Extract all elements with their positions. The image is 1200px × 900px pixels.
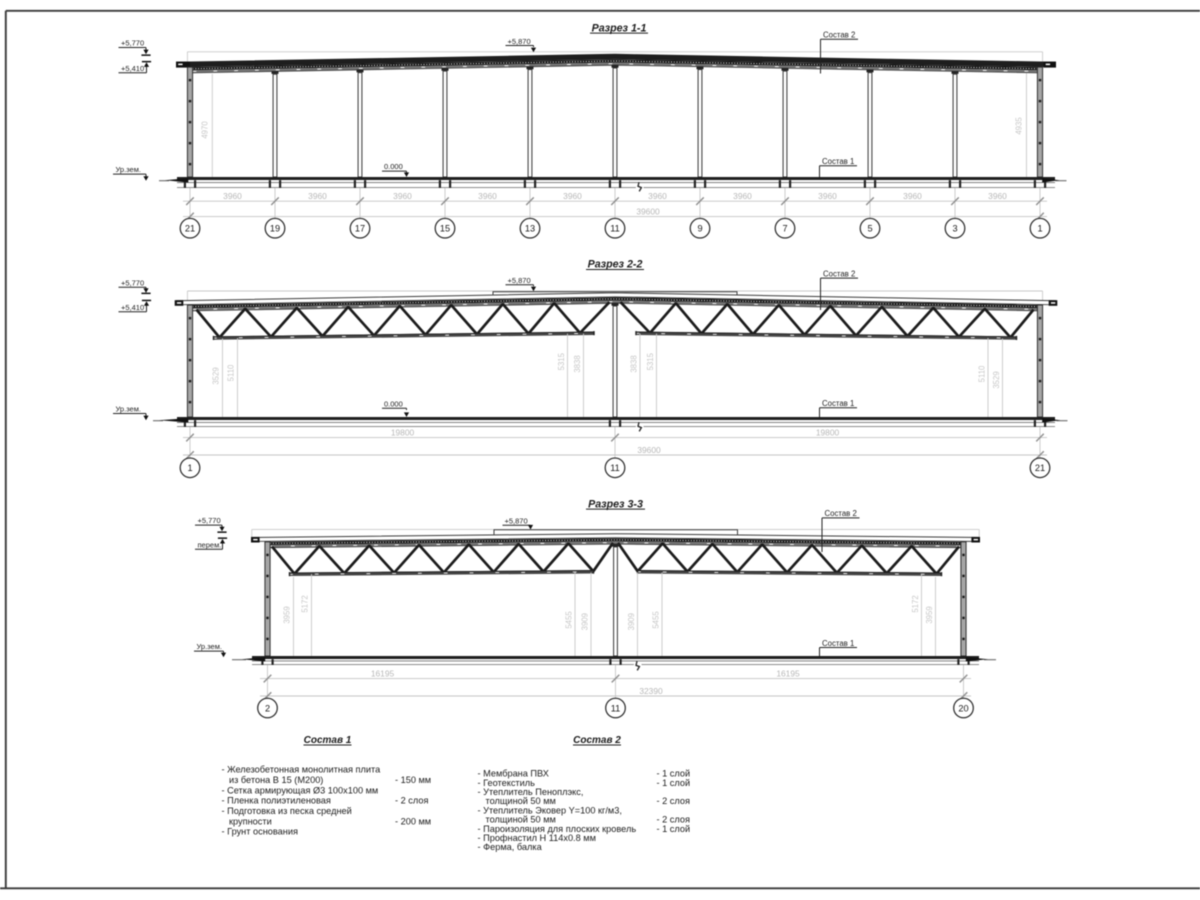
svg-text:- Подготовка из песка средней: - Подготовка из песка средней <box>222 806 352 816</box>
svg-text:11: 11 <box>610 463 620 473</box>
svg-text:5315: 5315 <box>557 352 566 370</box>
svg-text:0.000: 0.000 <box>384 399 403 408</box>
svg-text:3529: 3529 <box>212 367 221 384</box>
svg-text:3960: 3960 <box>223 191 242 201</box>
svg-text:5172: 5172 <box>911 595 920 612</box>
svg-text:+5,770: +5,770 <box>198 516 221 525</box>
svg-text:3: 3 <box>952 224 957 234</box>
svg-text:32390: 32390 <box>639 686 663 696</box>
svg-text:Состав 1: Состав 1 <box>822 399 854 408</box>
svg-text:Состав 1: Состав 1 <box>822 157 854 166</box>
svg-text:3960: 3960 <box>818 191 837 201</box>
svg-text:- Сетка армирующая Ø3 100х100: - Сетка армирующая Ø3 100х100 мм <box>222 785 379 795</box>
svg-text:Ур.зем.: Ур.зем. <box>197 642 222 651</box>
svg-text:3838: 3838 <box>573 355 582 372</box>
svg-text:- 2 слоя: - 2 слоя <box>657 796 690 806</box>
svg-text:1: 1 <box>187 463 192 473</box>
svg-text:3838: 3838 <box>630 355 639 372</box>
svg-text:3960: 3960 <box>903 191 922 201</box>
svg-text:крупности: крупности <box>229 816 272 826</box>
svg-text:16195: 16195 <box>776 668 800 678</box>
svg-text:19800: 19800 <box>816 427 840 437</box>
svg-text:из бетона В 15 (М200): из бетона В 15 (М200) <box>229 775 323 785</box>
svg-text:Ур.зем.: Ур.зем. <box>116 405 141 414</box>
svg-text:Ур.зем.: Ур.зем. <box>116 165 141 174</box>
svg-text:- Ферма, балка: - Ферма, балка <box>478 842 543 852</box>
svg-text:- 150 мм: - 150 мм <box>395 775 431 785</box>
svg-text:- Железобетонная монолитная п: - Железобетонная монолитная плита <box>222 765 382 775</box>
svg-text:5455: 5455 <box>565 611 574 629</box>
svg-text:3960: 3960 <box>308 191 327 201</box>
svg-text:2: 2 <box>265 703 270 713</box>
svg-text:7: 7 <box>782 224 787 234</box>
svg-text:3909: 3909 <box>627 613 636 630</box>
svg-text:21: 21 <box>185 224 195 234</box>
svg-text:3960: 3960 <box>393 191 412 201</box>
svg-text:- 1 слой: - 1 слой <box>657 824 691 834</box>
svg-text:5: 5 <box>867 224 872 234</box>
svg-text:21: 21 <box>1035 463 1045 473</box>
svg-text:Состав 2: Состав 2 <box>823 31 855 40</box>
svg-text:9: 9 <box>697 224 702 234</box>
svg-text:- 200 мм: - 200 мм <box>395 816 431 826</box>
svg-text:19800: 19800 <box>391 427 415 437</box>
svg-text:- 1 слой: - 1 слой <box>657 778 691 788</box>
svg-text:5110: 5110 <box>227 364 236 381</box>
svg-text:3960: 3960 <box>563 191 582 201</box>
svg-text:11: 11 <box>610 224 620 234</box>
svg-text:5315: 5315 <box>646 352 655 370</box>
svg-text:- Грунт основания: - Грунт основания <box>222 827 298 837</box>
svg-text:Разрез 2-2: Разрез 2-2 <box>588 259 643 271</box>
svg-text:Разрез 1-1: Разрез 1-1 <box>592 22 647 34</box>
svg-text:16195: 16195 <box>371 668 395 678</box>
svg-text:+5,770: +5,770 <box>121 39 144 48</box>
svg-text:3909: 3909 <box>581 613 590 630</box>
svg-text:39600: 39600 <box>636 206 660 216</box>
svg-text:+5,870: +5,870 <box>505 517 528 526</box>
svg-text:20: 20 <box>958 703 968 713</box>
svg-text:13: 13 <box>525 224 535 234</box>
svg-text:5172: 5172 <box>301 595 310 612</box>
svg-text:+5,770: +5,770 <box>121 278 144 287</box>
svg-text:Состав 2: Состав 2 <box>825 509 857 518</box>
svg-text:39600: 39600 <box>637 445 661 455</box>
svg-text:5110: 5110 <box>978 365 987 382</box>
svg-text:3960: 3960 <box>478 191 497 201</box>
svg-text:3529: 3529 <box>992 371 1001 388</box>
svg-text:1: 1 <box>1037 224 1042 234</box>
svg-text:3959: 3959 <box>925 606 934 623</box>
svg-text:+5,870: +5,870 <box>508 276 531 285</box>
svg-text:- 2 слоя: - 2 слоя <box>395 796 428 806</box>
svg-text:+5,410: +5,410 <box>121 64 144 73</box>
svg-text:11: 11 <box>611 703 621 713</box>
svg-text:- Пленка полиэтиленовая: - Пленка полиэтиленовая <box>222 796 331 806</box>
svg-text:4935: 4935 <box>1015 117 1024 135</box>
svg-text:3960: 3960 <box>988 191 1007 201</box>
svg-text:17: 17 <box>355 224 365 234</box>
svg-text:3960: 3960 <box>648 191 667 201</box>
svg-text:Состав 1: Состав 1 <box>822 639 854 648</box>
svg-text:15: 15 <box>440 224 450 234</box>
svg-text:5455: 5455 <box>652 611 661 629</box>
svg-text:3959: 3959 <box>283 606 292 623</box>
svg-text:0.000: 0.000 <box>384 162 403 171</box>
svg-text:3960: 3960 <box>733 191 752 201</box>
svg-text:перем.: перем. <box>198 540 222 549</box>
svg-text:Разрез 3-3: Разрез 3-3 <box>588 498 643 510</box>
svg-text:+5,870: +5,870 <box>508 37 531 46</box>
svg-text:4970: 4970 <box>201 121 210 139</box>
svg-text:+5,410: +5,410 <box>121 303 144 312</box>
svg-text:19: 19 <box>270 224 280 234</box>
svg-text:Состав 2: Состав 2 <box>823 269 855 278</box>
